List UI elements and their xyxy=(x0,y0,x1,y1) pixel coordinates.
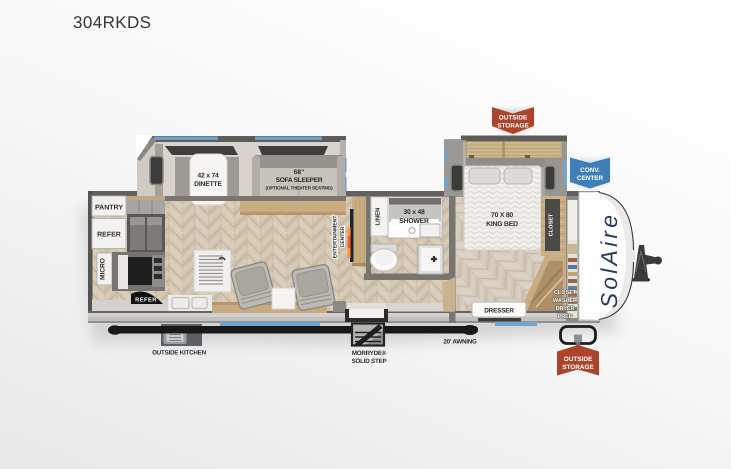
svg-text:STORAGE: STORAGE xyxy=(497,123,529,130)
svg-text:DRYER: DRYER xyxy=(556,306,575,312)
svg-text:OUTSIDE: OUTSIDE xyxy=(499,115,528,122)
svg-text:STORAGE: STORAGE xyxy=(562,364,594,371)
svg-text:68": 68" xyxy=(294,169,304,176)
svg-text:70 X 80: 70 X 80 xyxy=(491,212,513,219)
svg-text:20' AWNING: 20' AWNING xyxy=(443,339,477,346)
svg-text:PANTRY: PANTRY xyxy=(95,205,123,212)
svg-text:CLOSET: CLOSET xyxy=(554,290,577,296)
svg-text:PREP: PREP xyxy=(558,314,573,320)
svg-text:SOFA SLEEPER: SOFA SLEEPER xyxy=(276,177,323,184)
svg-text:OUTSIDE: OUTSIDE xyxy=(564,356,593,363)
svg-text:ENTERTAINMENT: ENTERTAINMENT xyxy=(333,215,339,259)
svg-text:SHOWER: SHOWER xyxy=(399,218,429,225)
svg-text:WASHER: WASHER xyxy=(553,298,577,304)
svg-text:MICRO: MICRO xyxy=(100,258,107,280)
svg-text:KING BED: KING BED xyxy=(486,221,518,228)
svg-text:CLOSET: CLOSET xyxy=(549,213,555,236)
svg-text:REFER: REFER xyxy=(97,232,121,239)
svg-text:LINEN: LINEN xyxy=(375,208,382,226)
svg-text:CENTER: CENTER xyxy=(577,175,604,182)
svg-text:OUTSIDE KITCHEN: OUTSIDE KITCHEN xyxy=(152,350,206,357)
svg-text:(OPTIONAL THEATER SEATING): (OPTIONAL THEATER SEATING) xyxy=(266,186,334,191)
svg-text:SolAire: SolAire xyxy=(596,212,622,309)
svg-text:CENTER: CENTER xyxy=(340,226,346,247)
svg-text:42 x 74: 42 x 74 xyxy=(197,173,219,180)
svg-text:MORRYDE®: MORRYDE® xyxy=(352,350,387,357)
svg-text:CONV.: CONV. xyxy=(580,167,600,174)
svg-text:304RKDS: 304RKDS xyxy=(73,13,151,32)
svg-text:DINETTE: DINETTE xyxy=(194,181,222,188)
svg-text:DRESSER: DRESSER xyxy=(484,308,514,315)
svg-text:30 x 48: 30 x 48 xyxy=(403,209,425,216)
svg-text:REFER: REFER xyxy=(135,298,157,304)
svg-text:SOLID STEP: SOLID STEP xyxy=(352,358,387,365)
